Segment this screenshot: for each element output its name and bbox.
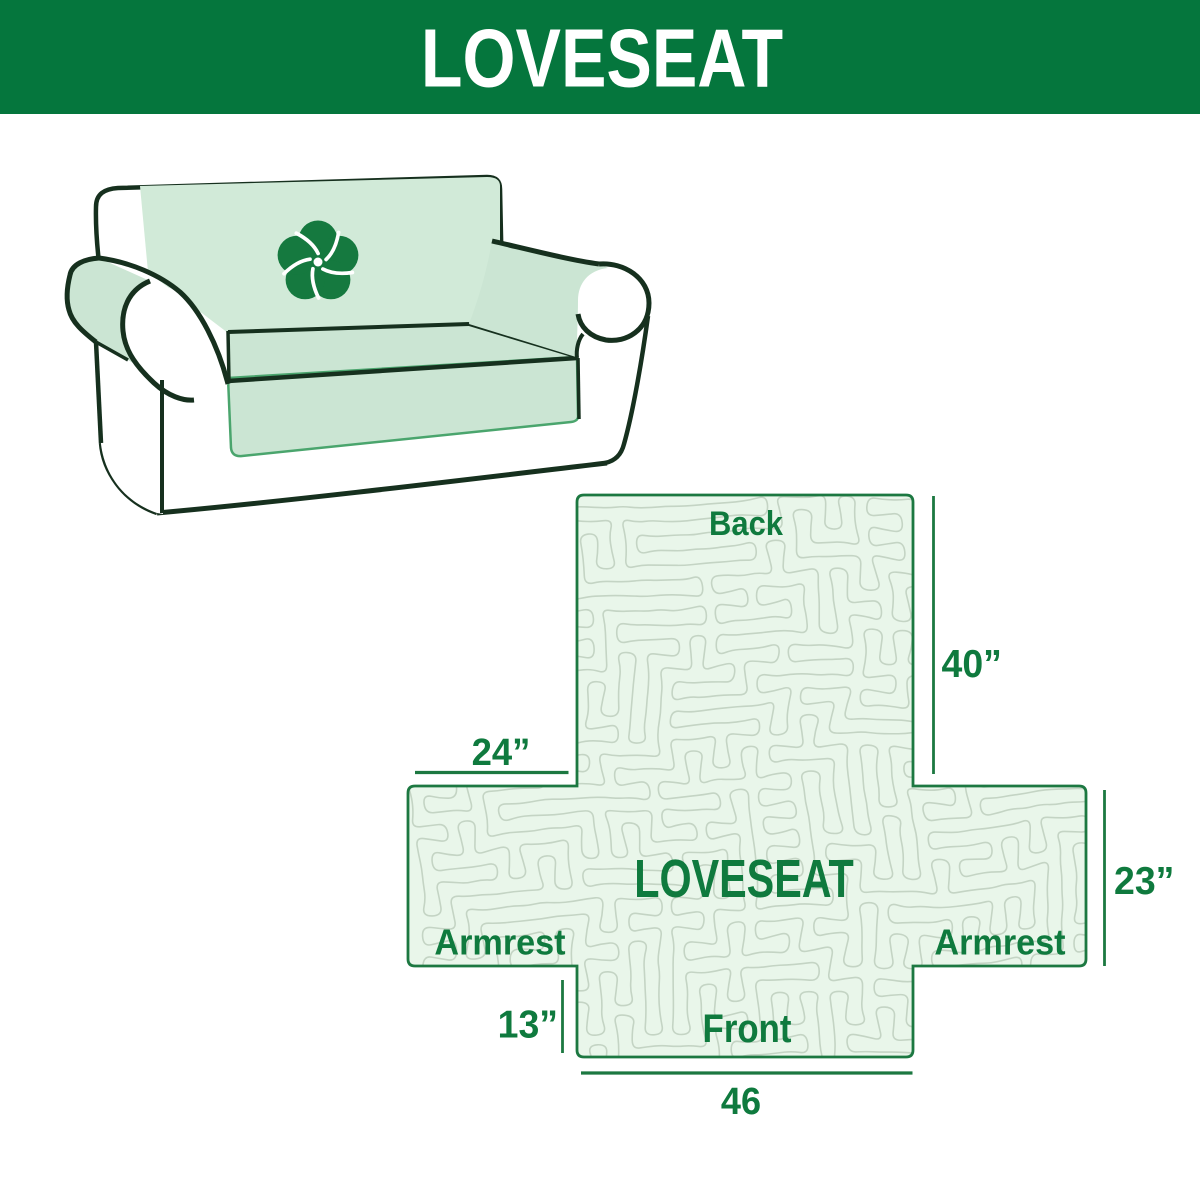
svg-text:40”: 40”: [942, 642, 1002, 686]
svg-text:LOVESEAT: LOVESEAT: [421, 12, 783, 105]
svg-text:23”: 23”: [1114, 859, 1174, 903]
svg-text:Back: Back: [709, 505, 784, 543]
svg-text:Armrest: Armrest: [434, 923, 565, 963]
svg-text:46: 46: [721, 1079, 761, 1122]
svg-text:24”: 24”: [472, 730, 531, 773]
svg-text:Front: Front: [703, 1006, 792, 1051]
svg-text:LOVESEAT: LOVESEAT: [634, 849, 854, 910]
svg-text:Armrest: Armrest: [934, 923, 1065, 963]
svg-text:13”: 13”: [498, 1003, 558, 1047]
